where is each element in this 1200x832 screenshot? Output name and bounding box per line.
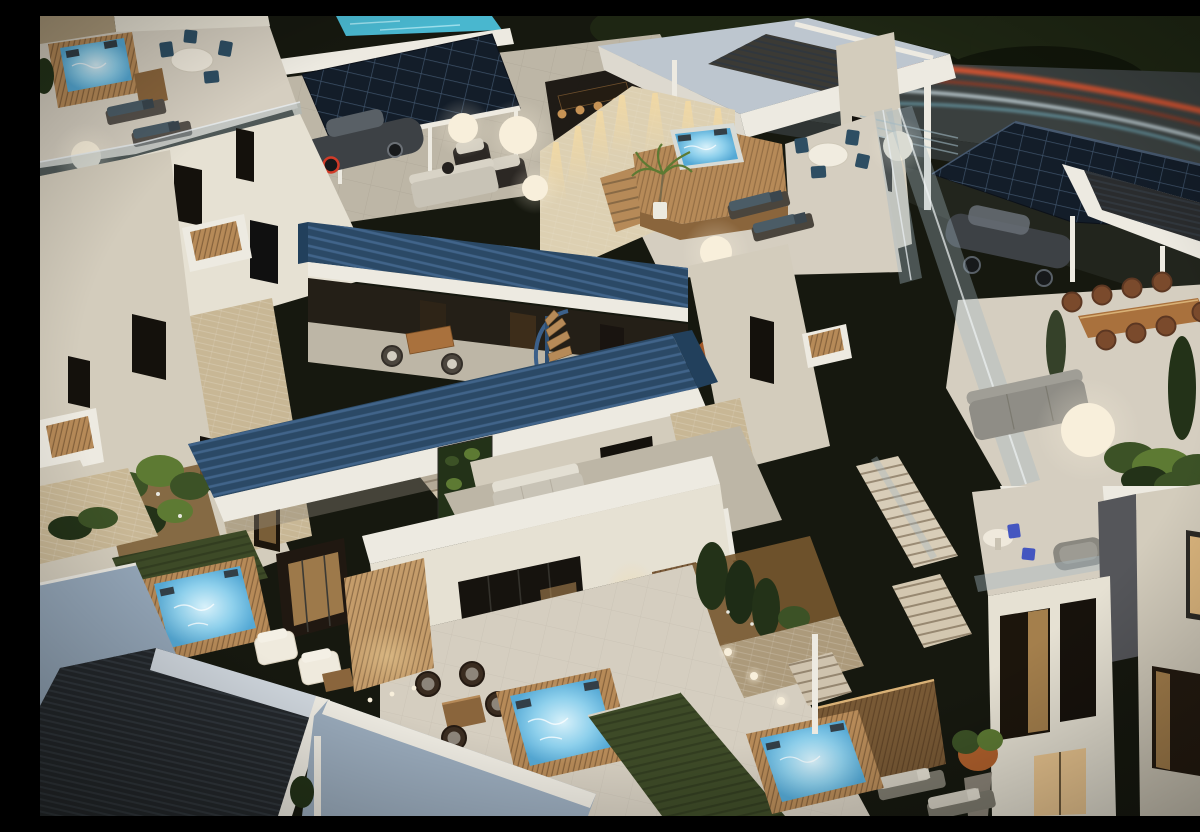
architectural-render (40, 16, 1200, 816)
render-canvas (40, 16, 1200, 816)
vignette (40, 16, 1200, 816)
